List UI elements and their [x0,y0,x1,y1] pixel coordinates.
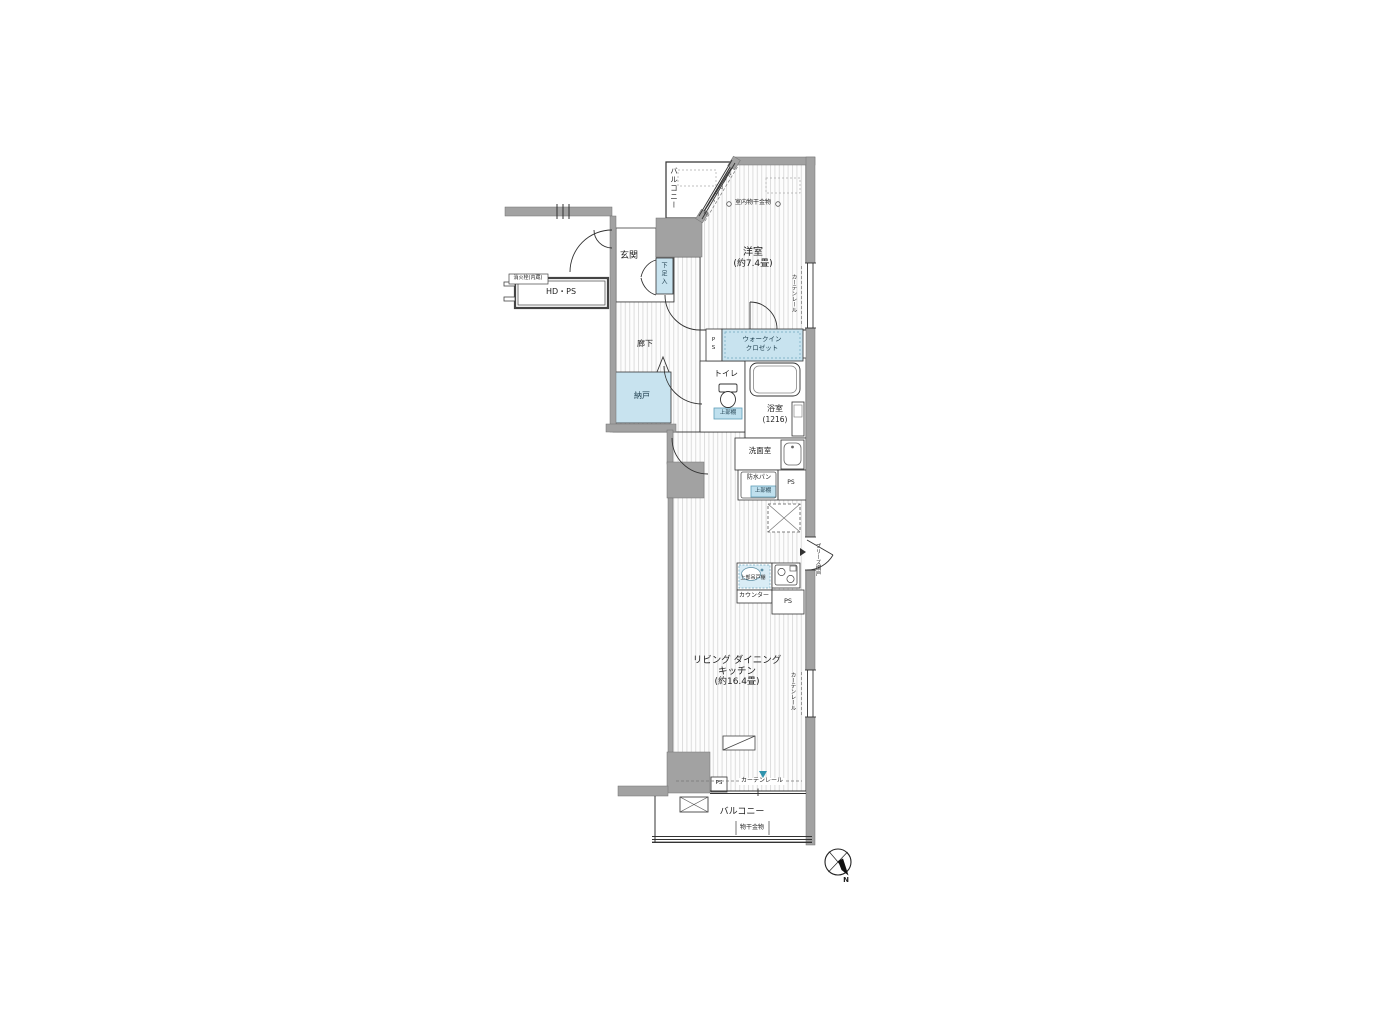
column-block-bottom [667,752,710,793]
balcony-bottom-label: バルコニー [720,808,765,818]
wic-ps-label: PS [710,337,716,353]
washbasin-icon [781,440,804,469]
wic-label-line1: ウォークイン [743,336,782,343]
bottom-ps-label: PS [716,780,723,786]
toilet-label: トイレ [714,370,738,379]
ldk-label-line3: (約16.4畳) [714,678,759,688]
bath-counter [792,402,804,436]
floorplan-drawing [0,0,1374,1028]
floor-hatch [723,736,755,750]
toilet-icon [719,384,737,408]
balcony-top-label: バルコニー [670,167,678,210]
stove-icon [772,563,800,588]
kitchen-cabinet-label: 上部吊戸棚 [740,576,765,582]
compass-n-label: N [843,877,849,885]
bath-name: 浴室 [767,405,783,414]
bathtub-icon [750,363,800,396]
fridge-space [768,504,800,532]
toilet-shelf-label: 上部棚 [720,410,737,416]
western-room-size: (約7.4畳) [733,260,772,270]
laundry-pan-label: 防水パン [747,475,771,482]
ldk-label-line2: キッチン [718,667,756,677]
breeze-screen-label: ブリーズ網戸 [814,543,820,576]
corridor-label: 廊下 [637,340,653,349]
laundry-shelf-label: 上部棚 [755,488,772,494]
entrance-label: 玄関 [620,252,638,262]
curtain-rail-living-label: カーテンレール [789,672,795,711]
washroom-label: 洗面室 [749,447,772,455]
bedroom-right-window [805,263,816,328]
shoe-box-label: 下足入 [660,262,666,286]
kitchen-counter-label: カウンター [739,593,769,600]
curtain-rail-bedroom-label: カーテンレール [790,274,796,313]
wic-label-line2: クロゼット [746,345,779,352]
room-floors [613,162,806,791]
hdps-note: 消火栓(内蔵) [514,276,543,282]
hdps-label: HD・PS [546,288,576,297]
entrance-door-arc-main [570,230,612,272]
column-block-mid [667,462,704,498]
indoor-drying-label: 室内物干金物 [735,200,771,207]
ldk-label-line1: リビング ダイニング [693,656,782,666]
kitchen-ps-label: PS [784,598,792,605]
balcony-bottom-outline [652,796,812,842]
storage-label: 納戸 [634,392,650,401]
laundry-ps-label: PS [787,480,794,487]
curtain-rail-bottom-label: カーテンレール [739,778,785,785]
drying-fixture-label: 物干金物 [740,825,764,832]
bath-size: (1216) [763,416,788,424]
evacuation-hatch [680,797,708,812]
compass-icon [825,849,851,876]
column-block-top [656,218,702,257]
western-room-name: 洋室 [743,247,763,258]
living-right-window [805,670,816,717]
floorplan-canvas: バルコニー カーテンレール 室内物干金物 洋室 (約7.4畳) カーテンレール … [0,0,1374,1028]
